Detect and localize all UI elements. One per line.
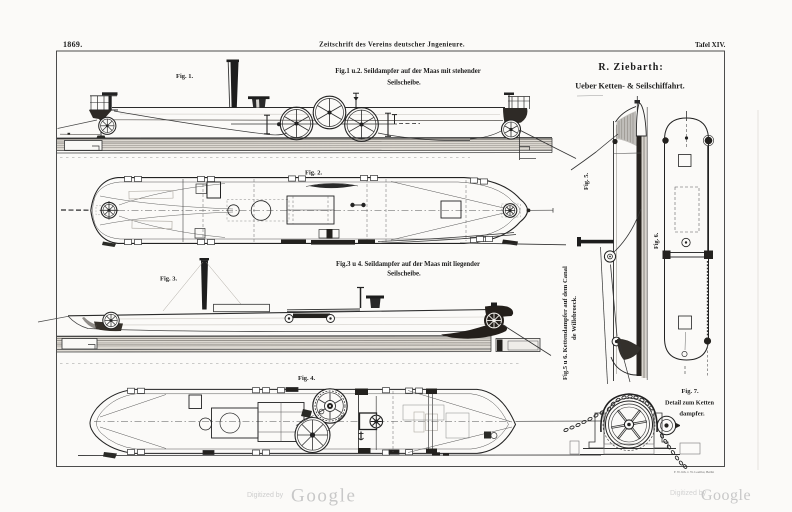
svg-text:dampfer.: dampfer. xyxy=(679,411,705,418)
svg-text:Fig. 4.: Fig. 4. xyxy=(298,375,316,382)
svg-text:Seilscheibe.: Seilscheibe. xyxy=(387,80,421,87)
svg-text:Fig.5 u 6. Kettendampfer auf: Fig.5 u 6. Kettendampfer auf dem Canal xyxy=(562,266,569,380)
svg-text:Seilscheibe.: Seilscheibe. xyxy=(387,271,421,278)
svg-text:de Willebroeck.: de Willebroeck. xyxy=(571,296,578,340)
svg-text:Fig. 2.: Fig. 2. xyxy=(305,170,323,177)
svg-text:Digitized by: Digitized by xyxy=(247,492,284,499)
svg-text:Fig.1 u.2. Seildampfer auf: Fig.1 u.2. Seildampfer auf der Maas mit … xyxy=(335,68,481,75)
svg-text:Fig. 6.: Fig. 6. xyxy=(653,232,660,249)
svg-text:R. Ziebarth:: R. Ziebarth: xyxy=(598,62,663,73)
svg-text:Fig. 7.: Fig. 7. xyxy=(681,388,699,395)
svg-text:Fig. 5.: Fig. 5. xyxy=(583,172,590,190)
svg-text:Google: Google xyxy=(701,487,751,504)
svg-text:Fig. 3.: Fig. 3. xyxy=(160,276,178,283)
svg-text:Google: Google xyxy=(291,486,357,507)
svg-text:Fig. 1.: Fig. 1. xyxy=(176,73,194,80)
svg-text:Tafel XIV.: Tafel XIV. xyxy=(695,41,726,49)
svg-text:Zeitschrift des Vereins deutsc: Zeitschrift des Vereins deutscher Jngeni… xyxy=(319,42,465,49)
svg-text:Ueber Ketten- & Seilschiffahrt: Ueber Ketten- & Seilschiffahrt. xyxy=(575,82,684,91)
svg-text:1869.: 1869. xyxy=(63,40,83,49)
svg-text:Detail zum Ketten: Detail zum Ketten xyxy=(665,400,714,407)
svg-text:Fig.3 u 4. Seildampfer auf: Fig.3 u 4. Seildampfer auf der Maas mit … xyxy=(336,261,480,268)
